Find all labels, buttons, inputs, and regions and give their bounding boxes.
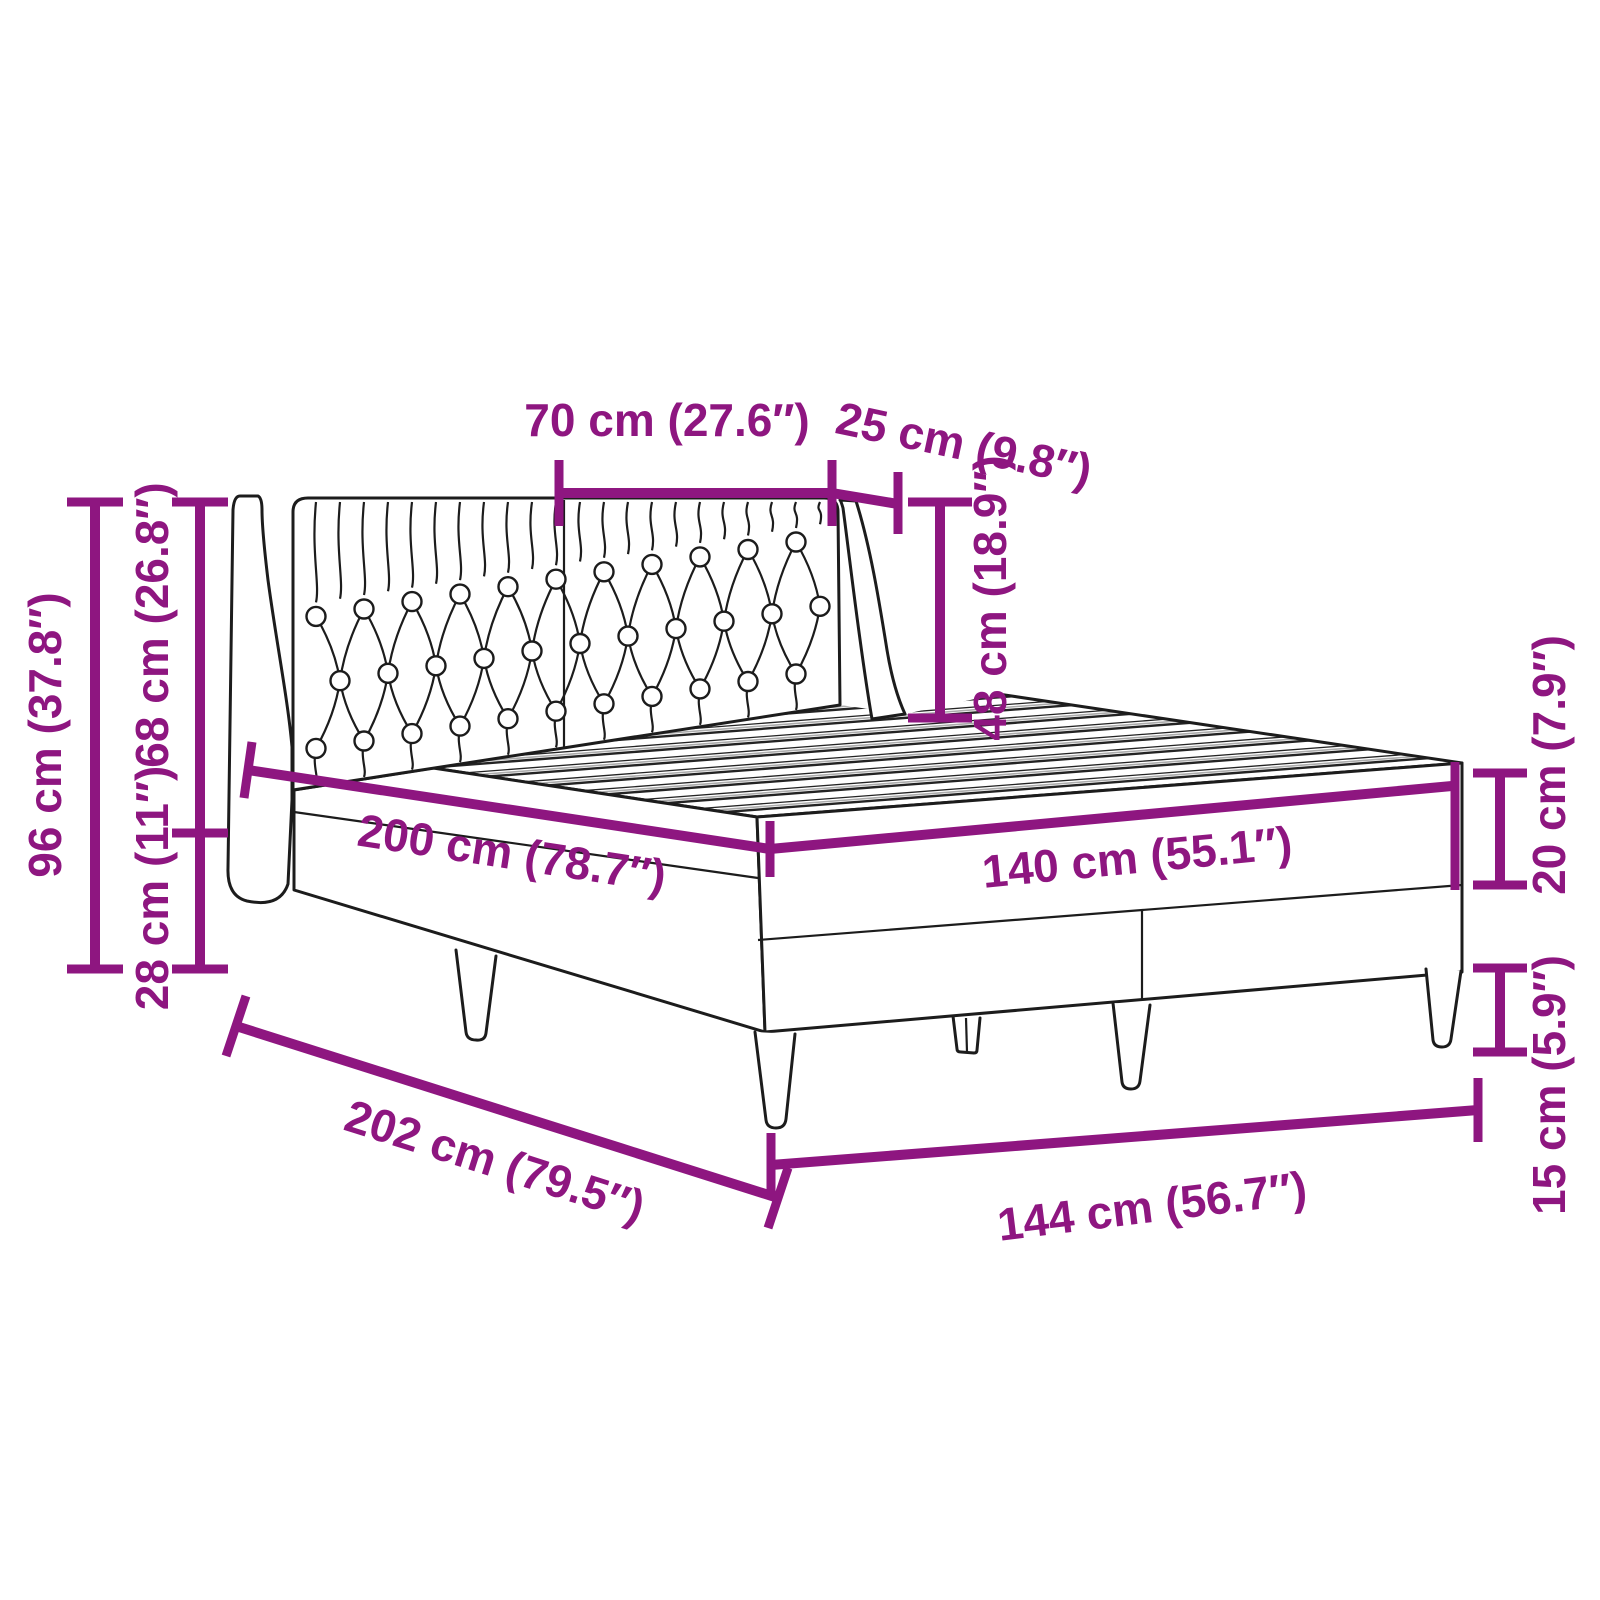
dim-label-20cm: 20 cm (7.9″) [1523, 635, 1575, 895]
front-left-leg [755, 1032, 795, 1128]
front-middle-leg [1113, 1003, 1150, 1089]
dimension-leg-height: 15 cm (5.9″) [1473, 955, 1575, 1215]
dimension-total-height: 96 cm (37.8″) [19, 502, 123, 969]
dimension-total-length: 202 cm (79.5″) [226, 996, 788, 1233]
dim-label-15cm: 15 cm (5.9″) [1523, 955, 1575, 1215]
front-right-leg [1426, 969, 1461, 1047]
product-dimension-diagram: 70 cm (27.6″) 25 cm (9.8″) 48 cm (18.9″)… [0, 0, 1600, 1600]
dimension-headboard-and-base-height: 68 cm (26.8″) 28 cm (11″) [126, 482, 228, 1010]
dimension-headboard-above-slats: 48 cm (18.9″) [908, 455, 1016, 740]
dimension-frame-side-height: 20 cm (7.9″) [1473, 635, 1575, 895]
dim-label-68cm: 68 cm (26.8″) [126, 482, 178, 767]
side-leg [456, 950, 496, 1040]
dim-label-144cm: 144 cm (56.7″) [994, 1161, 1309, 1251]
dimension-total-width: 144 cm (56.7″) [771, 1078, 1478, 1251]
dim-label-96cm: 96 cm (37.8″) [19, 592, 71, 877]
bed-dimension-diagram: 70 cm (27.6″) 25 cm (9.8″) 48 cm (18.9″)… [0, 0, 1600, 1600]
dim-label-48cm: 48 cm (18.9″) [964, 455, 1016, 740]
rear-middle-leg-edge [966, 1018, 967, 1052]
dim-label-28cm: 28 cm (11″) [126, 766, 178, 1011]
dim-label-70cm: 70 cm (27.6″) [524, 394, 809, 446]
headboard-left-wing [228, 496, 292, 903]
